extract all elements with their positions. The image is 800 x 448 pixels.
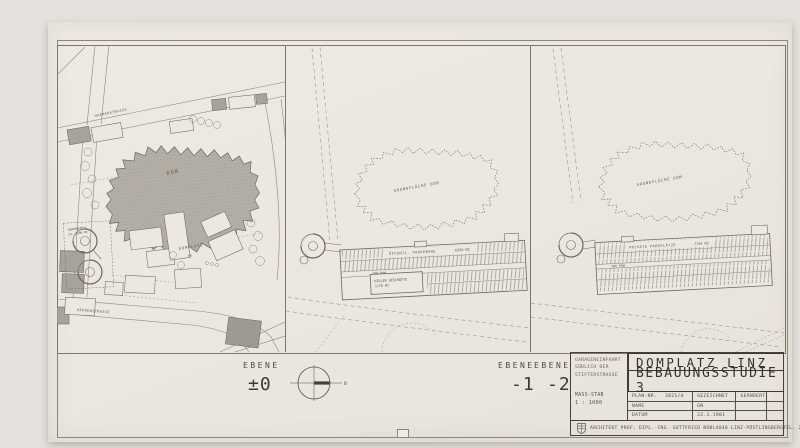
plan-nr-value: 3821/4 (665, 394, 684, 399)
title-block-note: GARAGENEINFAHRT SÜDLICH DER STIFTERSTRAS… (571, 353, 627, 391)
curved-road-dashed (316, 315, 436, 352)
name-label-cell: NAME (628, 402, 693, 411)
grundflaeche-dom-label: GRUNDFLÄCHE DOM (636, 174, 682, 187)
table-row: NAME GN (628, 402, 783, 412)
entry-ramp (300, 234, 341, 264)
stair-exit (622, 236, 634, 242)
domplatz-level: ±0 (188, 253, 192, 258)
scale-cell: MASS-STAB 1 : 1000 (571, 391, 627, 420)
level-caption-1-value: -1 (511, 374, 535, 395)
registration-mark (397, 429, 409, 438)
scanned-plan-sheet: HAFNERSTRASSE HERRENSTRASSE DOM DOMPLATZ… (0, 0, 800, 448)
datum-value-cell: 22.1.1981 (693, 411, 736, 420)
title-block-footer: ARCHITEKT PROF. DIPL.-ING. GOTTFRIED NOB… (571, 420, 783, 435)
stair-exit (414, 241, 426, 247)
datum-label-cell: DATUM (628, 411, 693, 420)
north-letter: N (344, 381, 347, 387)
level-caption-0-value: ±0 (248, 374, 272, 395)
name-value-cell: GN (693, 402, 736, 411)
north-compass: N (286, 360, 350, 408)
parking-deck: ÖFFENTL. PARKEBENE 6950 M2 240 PKW KELLE… (339, 233, 527, 300)
stair-exit (504, 233, 518, 242)
dom-footprint-outline (352, 141, 502, 235)
parking-deck-cars: 306 PKW (611, 264, 625, 269)
keller-label-line2: 1170 M2 (375, 283, 389, 288)
scale-value: 1 : 1000 (575, 400, 624, 406)
level-caption-2-word: EBENE (534, 361, 571, 370)
dom-footprint-outline (596, 135, 754, 227)
north-arrow (314, 381, 330, 384)
curved-road-dashed (681, 328, 784, 352)
title-block-table: PLAN-NR. 3821/4 GEZEICHNET GEÄNDERT NAME… (628, 392, 783, 420)
parking-deck-area: 7758 M2 (694, 241, 709, 246)
table-row: PLAN-NR. 3821/4 GEZEICHNET GEÄNDERT (628, 392, 783, 402)
panel-level-minus1-drawing: GRUNDFLÄCHE DOM ÖFFENTL. PARKEBENE 6950 … (285, 45, 531, 352)
note-line: SÜDLICH DER (575, 364, 624, 371)
study-title: BEBAUUNGSSTUDIE 3 (628, 371, 783, 392)
panel-level-minus2-drawing: GRUNDFLÄCHE DOM PRIVATE PARKPLÄTZE 7758 … (530, 45, 785, 352)
note-line: GARAGENEINFAHRT (575, 357, 624, 364)
parking-deck-area: 6950 M2 (455, 248, 470, 253)
stair-exit (751, 225, 767, 235)
empty-cell (767, 411, 783, 420)
street-edges-dashed (531, 48, 784, 347)
street-label-hafnerstrasse: HAFNERSTRASSE (94, 107, 127, 118)
paper-sheet: HAFNERSTRASSE HERRENSTRASSE DOM DOMPLATZ… (48, 22, 792, 442)
gezeichnet-header: GEZEICHNET (693, 392, 736, 401)
table-row: DATUM 22.1.1981 (628, 411, 783, 420)
level-caption-2-value: -2 (547, 374, 571, 395)
empty-cell (767, 402, 783, 411)
level-caption-1-word: EBENE (498, 361, 535, 370)
street-edges-dashed (286, 47, 529, 342)
note-line: STIFTERSTRASSE (575, 372, 624, 379)
architect-address: 4040 LINZ-PÖSTLINGBERG (716, 426, 783, 431)
panel-level-0-drawing: HAFNERSTRASSE HERRENSTRASSE DOM DOMPLATZ… (57, 45, 285, 352)
geaendert-header: GEÄNDERT (736, 392, 767, 401)
architect-tel: TEL. 23 24 81 (783, 426, 800, 431)
scale-label: MASS-STAB (575, 393, 624, 398)
empty-cell (767, 392, 783, 401)
architect-name: ARCHITEKT PROF. DIPL.-ING. GOTTFRIED NOB… (590, 426, 716, 431)
level-caption-0-word: EBENE (243, 361, 280, 370)
parking-deck: PRIVATE PARKPLÄTZE 7758 M2 306 PKW (594, 225, 772, 295)
plan-nr-cell: PLAN-NR. 3821/4 (628, 392, 693, 401)
empty-cell (736, 411, 767, 420)
empty-cell (736, 402, 767, 411)
entry-ramp (557, 233, 596, 263)
title-block: GARAGENEINFAHRT SÜDLICH DER STIFTERSTRAS… (570, 352, 784, 436)
city-emblem-icon (577, 423, 586, 434)
grundflaeche-dom-label: GRUNDFLÄCHE DOM (393, 180, 439, 193)
plan-nr-label: PLAN-NR. (632, 394, 657, 399)
